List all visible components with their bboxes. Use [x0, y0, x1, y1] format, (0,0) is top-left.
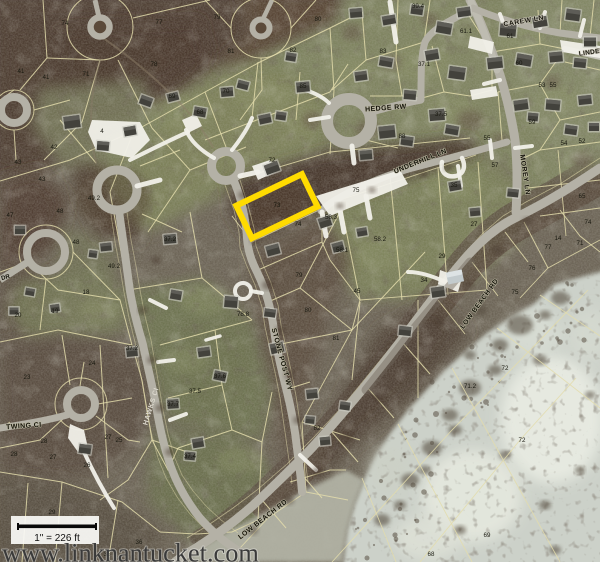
svg-text:39.4: 39.4 [412, 3, 425, 10]
svg-text:69: 69 [484, 532, 491, 539]
svg-text:37.7: 37.7 [167, 401, 180, 408]
svg-text:26: 26 [84, 462, 91, 469]
svg-text:70: 70 [223, 88, 230, 95]
svg-text:58.2: 58.2 [374, 236, 387, 243]
svg-text:88: 88 [399, 133, 406, 140]
svg-text:29: 29 [49, 509, 56, 516]
svg-text:75: 75 [353, 187, 360, 194]
svg-text:78: 78 [151, 61, 158, 68]
svg-text:78.8: 78.8 [237, 311, 250, 318]
svg-text:19: 19 [52, 308, 59, 315]
svg-text:42: 42 [51, 144, 58, 151]
svg-text:54: 54 [561, 140, 568, 147]
svg-text:57: 57 [492, 162, 499, 169]
svg-text:29: 29 [439, 253, 446, 260]
svg-text:47: 47 [7, 212, 14, 219]
svg-text:37.5: 37.5 [189, 388, 202, 395]
svg-text:28: 28 [11, 451, 18, 458]
svg-text:74: 74 [62, 20, 69, 27]
svg-text:58.1: 58.1 [336, 247, 349, 254]
svg-text:81: 81 [228, 48, 235, 55]
svg-text:4: 4 [100, 128, 104, 135]
svg-text:74: 74 [585, 219, 592, 226]
svg-text:48: 48 [57, 208, 64, 215]
svg-text:37.2: 37.2 [126, 345, 139, 352]
svg-text:27: 27 [50, 454, 57, 461]
svg-text:23: 23 [24, 374, 31, 381]
svg-text:77: 77 [545, 244, 552, 251]
svg-text:45: 45 [354, 288, 361, 295]
svg-text:60: 60 [516, 60, 523, 67]
svg-text:37.1: 37.1 [418, 61, 431, 68]
svg-text:55: 55 [484, 135, 491, 142]
svg-text:41: 41 [18, 68, 25, 75]
svg-text:www.linknantucket.com: www.linknantucket.com [2, 539, 259, 562]
svg-text:80: 80 [305, 307, 312, 314]
svg-text:82: 82 [290, 47, 297, 54]
svg-text:49.2: 49.2 [88, 195, 101, 202]
svg-text:76: 76 [529, 265, 536, 272]
svg-text:71: 71 [577, 240, 584, 247]
svg-text:25: 25 [116, 437, 123, 444]
svg-text:37.4: 37.4 [184, 453, 197, 460]
svg-text:82: 82 [314, 425, 321, 432]
svg-text:83: 83 [380, 48, 387, 55]
svg-text:72: 72 [269, 157, 276, 164]
svg-text:72: 72 [519, 437, 526, 444]
svg-text:35: 35 [451, 182, 458, 189]
svg-text:20: 20 [15, 312, 22, 319]
svg-text:41: 41 [43, 74, 50, 81]
svg-text:24: 24 [89, 360, 96, 367]
svg-text:71: 71 [83, 71, 90, 78]
svg-text:27: 27 [471, 221, 478, 228]
svg-text:55: 55 [550, 82, 557, 89]
svg-text:43: 43 [15, 159, 22, 166]
svg-text:61.1: 61.1 [460, 28, 473, 35]
svg-text:75: 75 [512, 289, 519, 296]
svg-text:69: 69 [169, 93, 176, 100]
svg-text:59: 59 [529, 119, 536, 126]
svg-text:53: 53 [539, 82, 546, 89]
svg-text:61: 61 [507, 33, 514, 40]
svg-text:49.2: 49.2 [108, 263, 121, 270]
svg-text:80: 80 [315, 16, 322, 23]
svg-text:77: 77 [156, 19, 163, 26]
svg-text:58.3: 58.3 [325, 214, 338, 221]
svg-text:34: 34 [421, 277, 428, 284]
svg-text:72: 72 [502, 365, 509, 372]
svg-text:79: 79 [214, 14, 221, 21]
svg-text:37.2: 37.2 [164, 236, 177, 243]
svg-text:14: 14 [555, 235, 562, 242]
svg-text:43: 43 [39, 176, 46, 183]
svg-text:85: 85 [300, 83, 307, 90]
svg-text:65: 65 [579, 193, 586, 200]
svg-text:81: 81 [333, 335, 340, 342]
svg-text:37.6: 37.6 [214, 373, 227, 380]
svg-text:68: 68 [197, 109, 204, 116]
svg-text:79: 79 [296, 272, 303, 279]
svg-text:52: 52 [579, 138, 586, 145]
svg-text:71.2: 71.2 [464, 383, 477, 390]
svg-text:48: 48 [73, 239, 80, 246]
svg-text:37.5: 37.5 [435, 111, 448, 118]
svg-text:18: 18 [83, 289, 90, 296]
svg-text:68: 68 [428, 551, 435, 558]
svg-text:73: 73 [274, 202, 281, 209]
svg-text:27: 27 [105, 434, 112, 441]
svg-text:28: 28 [41, 438, 48, 445]
svg-text:74: 74 [295, 221, 302, 228]
